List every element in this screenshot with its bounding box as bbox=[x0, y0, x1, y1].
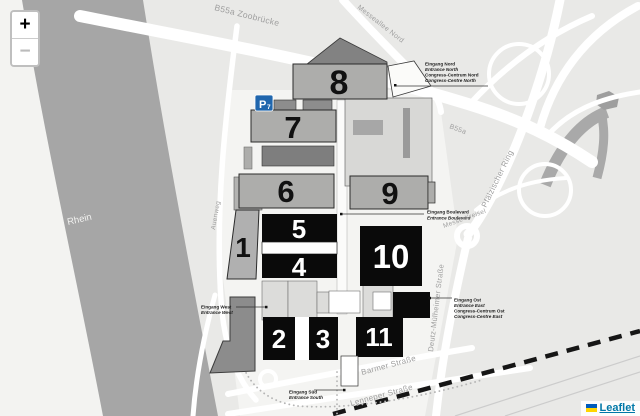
hall-1-label: 1 bbox=[235, 232, 251, 263]
hall-2-label: 2 bbox=[272, 324, 286, 354]
parking-letter: P bbox=[259, 99, 266, 111]
entrance-boulevard-label: Eingang Boulevard bbox=[427, 210, 469, 215]
attribution-bar: Leaflet bbox=[581, 401, 640, 416]
hall-11-label: 11 bbox=[365, 322, 393, 352]
zoom-out-button[interactable]: − bbox=[12, 39, 38, 65]
hall-4-label: 4 bbox=[292, 252, 307, 282]
map-tiles: P 7 8 7 6 9 1 5 4 10 2 3 11 bbox=[0, 0, 640, 416]
east-wing-building bbox=[345, 98, 432, 186]
parking-number: 7 bbox=[267, 104, 271, 111]
zoom-control: + − bbox=[10, 10, 40, 67]
hall-10-label: 10 bbox=[373, 238, 410, 275]
svg-text:Congress-Centrum Nord: Congress-Centrum Nord bbox=[425, 73, 479, 78]
parking-p7-icon[interactable]: P 7 bbox=[255, 95, 273, 111]
entrance-west-annotation: Eingang West Entrance West bbox=[201, 305, 233, 316]
ukraine-flag-icon bbox=[586, 404, 597, 412]
entrance-south-label: Eingang Süd bbox=[289, 390, 317, 395]
hall-9-label: 9 bbox=[381, 176, 398, 211]
leaflet-link[interactable]: Leaflet bbox=[600, 402, 635, 414]
zoom-in-button[interactable]: + bbox=[12, 12, 38, 39]
entrance-north-label: Eingang Nord bbox=[425, 62, 455, 67]
svg-text:Congress-Centre East: Congress-Centre East bbox=[454, 314, 503, 319]
congress-east-building bbox=[393, 292, 430, 318]
svg-text:Congress-Centrum Ost: Congress-Centrum Ost bbox=[454, 309, 505, 314]
hall-5-label: 5 bbox=[292, 214, 306, 244]
svg-text:Entrance West: Entrance West bbox=[201, 310, 233, 315]
hall-8-label: 8 bbox=[330, 64, 349, 102]
svg-text:Entrance North: Entrance North bbox=[425, 67, 458, 72]
hall-3-label: 3 bbox=[316, 324, 330, 354]
hall-6-label: 6 bbox=[277, 174, 294, 209]
hall-7-label: 7 bbox=[284, 110, 301, 145]
entrance-east-label: Eingang Ost bbox=[454, 298, 482, 303]
map-canvas[interactable]: P 7 8 7 6 9 1 5 4 10 2 3 11 bbox=[0, 0, 640, 416]
south-corridor bbox=[341, 356, 358, 386]
svg-text:Entrance South: Entrance South bbox=[289, 395, 323, 400]
svg-text:Congress-Centre North: Congress-Centre North bbox=[425, 78, 476, 83]
entrance-west-label: Eingang West bbox=[201, 305, 232, 310]
svg-text:Entrance East: Entrance East bbox=[454, 303, 485, 308]
